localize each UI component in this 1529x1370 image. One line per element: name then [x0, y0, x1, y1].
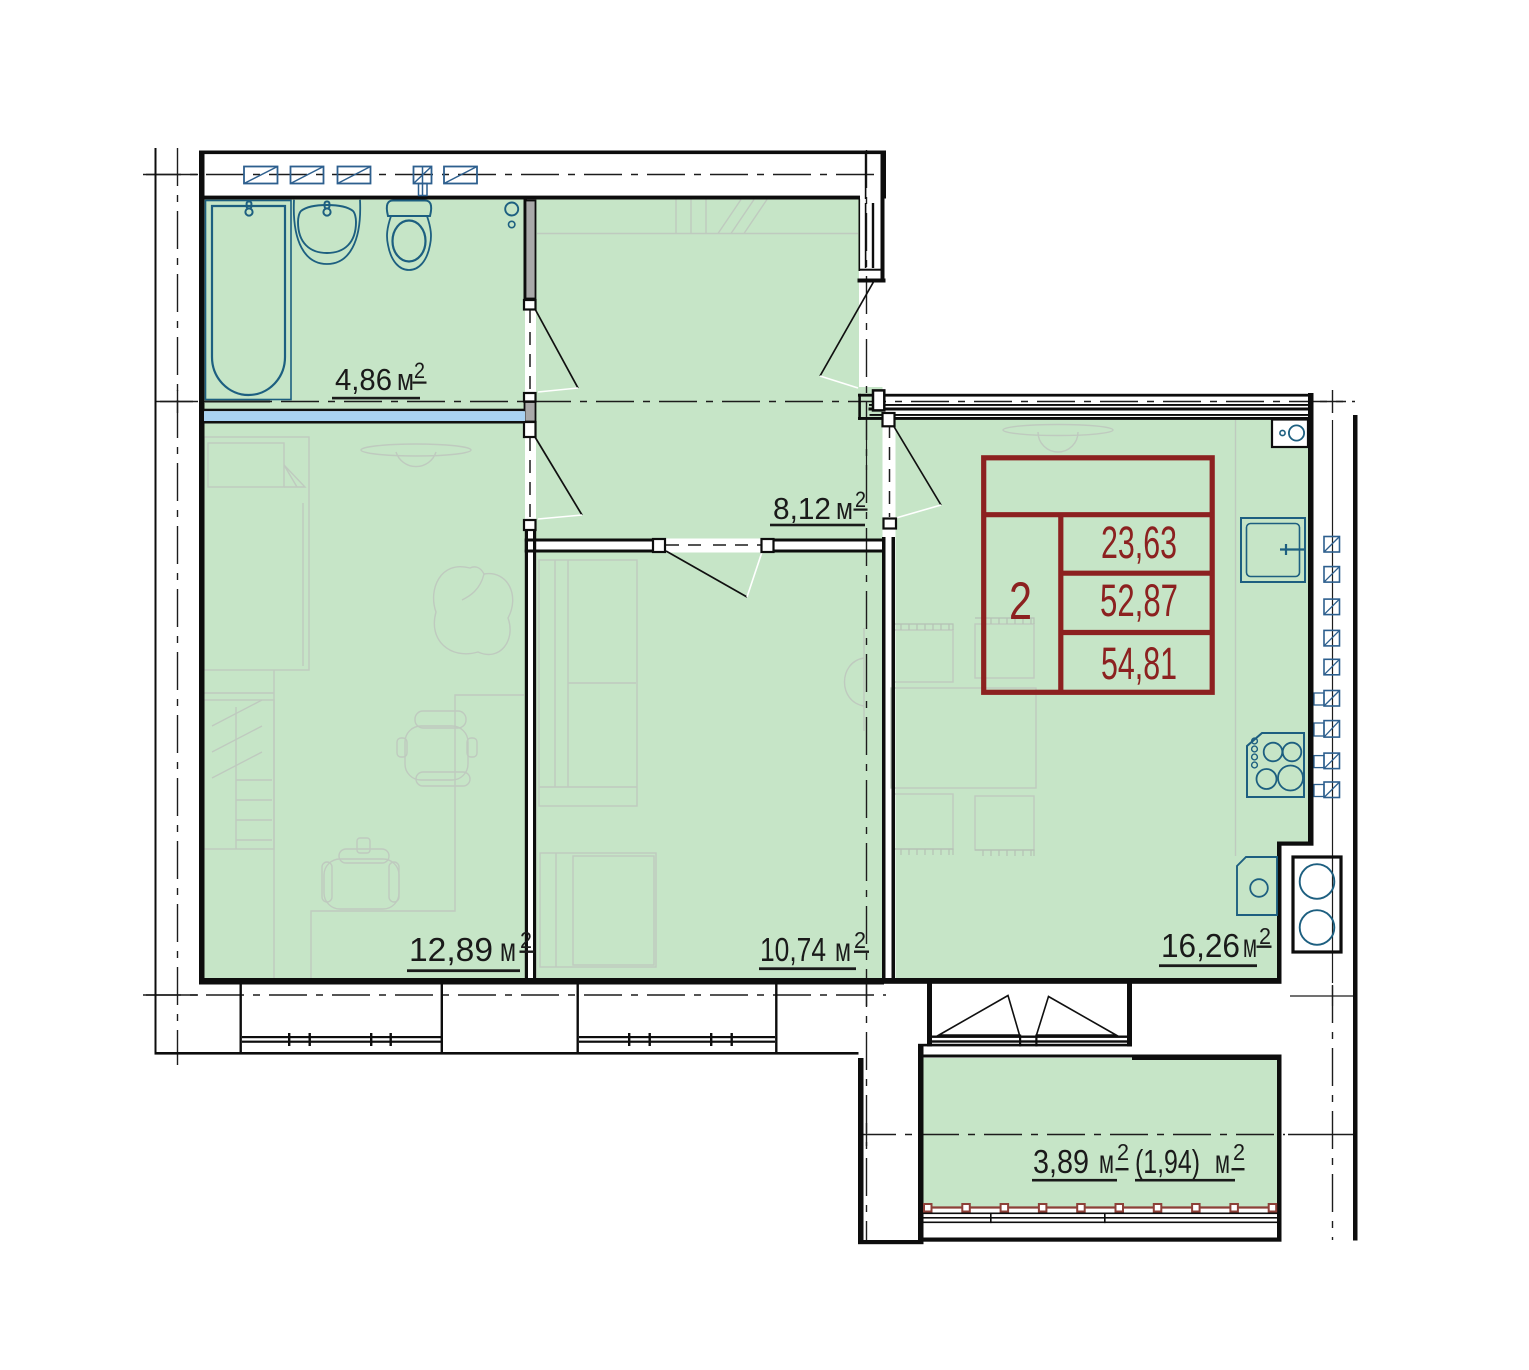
- svg-text:2: 2: [1009, 572, 1032, 631]
- svg-text:52,87: 52,87: [1100, 575, 1178, 626]
- svg-text:4,86: 4,86: [335, 362, 392, 397]
- svg-text:м: м: [1099, 1143, 1114, 1180]
- svg-text:м: м: [1215, 1143, 1230, 1180]
- svg-text:2: 2: [855, 487, 866, 512]
- svg-text:3,89: 3,89: [1033, 1143, 1089, 1180]
- svg-text:2: 2: [1117, 1139, 1129, 1165]
- svg-text:12,89: 12,89: [409, 931, 493, 968]
- svg-text:10,74: 10,74: [760, 931, 826, 968]
- svg-text:23,63: 23,63: [1101, 517, 1177, 568]
- svg-text:2: 2: [520, 927, 532, 953]
- svg-text:2: 2: [414, 358, 425, 383]
- svg-text:м: м: [836, 491, 853, 526]
- svg-text:м: м: [500, 931, 516, 968]
- svg-text:8,12: 8,12: [773, 491, 831, 526]
- svg-text:м: м: [1243, 927, 1257, 964]
- svg-text:м: м: [835, 931, 851, 968]
- svg-text:м: м: [397, 362, 414, 397]
- svg-text:54,81: 54,81: [1101, 638, 1177, 689]
- svg-text:2: 2: [854, 927, 866, 953]
- svg-text:2: 2: [1259, 923, 1271, 949]
- svg-text:2: 2: [1233, 1139, 1245, 1165]
- svg-text:16,26: 16,26: [1161, 927, 1240, 964]
- svg-text:(1,94): (1,94): [1135, 1143, 1200, 1180]
